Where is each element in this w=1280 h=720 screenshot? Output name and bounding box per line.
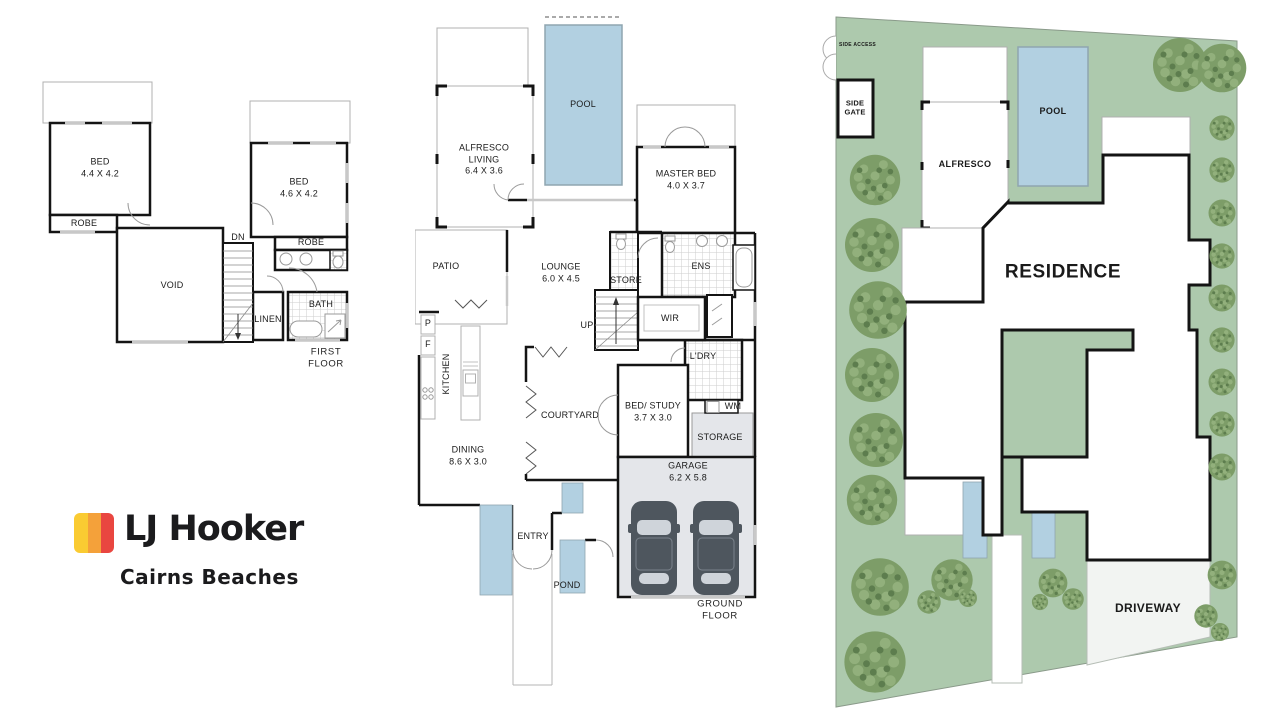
logo-stripe-red	[101, 513, 114, 553]
master-bed-room	[637, 147, 735, 233]
storage-area	[692, 413, 753, 459]
balcony-outline	[43, 82, 152, 123]
logo-stripe-orange	[88, 513, 101, 553]
entry-path	[513, 554, 552, 685]
brand-name: LJ Hooker	[124, 509, 303, 549]
ground-floor-plan: ALFRESCO LIVING 6.4 X 3.6 POOL MASTER BE…	[415, 14, 770, 700]
patio-site	[902, 228, 983, 302]
driveway-area	[1087, 560, 1210, 665]
entry-path-site	[992, 535, 1022, 683]
wir-room	[638, 297, 705, 340]
floorplan-page: BED 4.4 X 4.2 ROBE BED 4.6 X 4.2 ROBE VO…	[0, 0, 1280, 720]
stairs-up	[595, 290, 638, 350]
first-floor-plan: BED 4.4 X 4.2 ROBE BED 4.6 X 4.2 ROBE VO…	[40, 78, 360, 370]
first-floor-plan-drawing	[40, 78, 360, 370]
site-plan: SIDE ACCESS SIDE GATE ALFRESCO POOL RESI…	[818, 10, 1260, 715]
alfresco-balcony-site	[923, 47, 1007, 102]
shower	[707, 295, 732, 337]
patio-outline	[415, 230, 507, 324]
stairs-down	[223, 243, 253, 342]
balcony-outline	[250, 101, 350, 143]
side-access-gates	[823, 36, 836, 80]
alfresco-living-outline	[437, 86, 533, 227]
bathtub	[736, 248, 752, 287]
kitchen-joinery	[421, 315, 480, 420]
laundry-room	[685, 340, 742, 400]
lj-hooker-logo-mark	[70, 509, 118, 557]
master-balcony-outline	[637, 105, 735, 147]
washing-machine	[707, 402, 719, 413]
ground-floor-plan-drawing	[415, 14, 770, 700]
pool-area	[545, 25, 622, 185]
brand-office: Cairns Beaches	[120, 565, 299, 589]
master-balcony-site	[1102, 117, 1190, 155]
pool-site	[1018, 47, 1088, 186]
bed-study-room	[618, 365, 688, 457]
site-plan-drawing	[818, 10, 1260, 715]
agency-logo: LJ Hooker Cairns Beaches	[70, 509, 370, 609]
pond-water	[480, 483, 585, 595]
alfresco-balcony-outline	[437, 28, 528, 86]
logo-stripe-yellow	[74, 513, 88, 553]
alfresco-site	[922, 102, 1008, 228]
side-gate-box	[838, 80, 873, 137]
